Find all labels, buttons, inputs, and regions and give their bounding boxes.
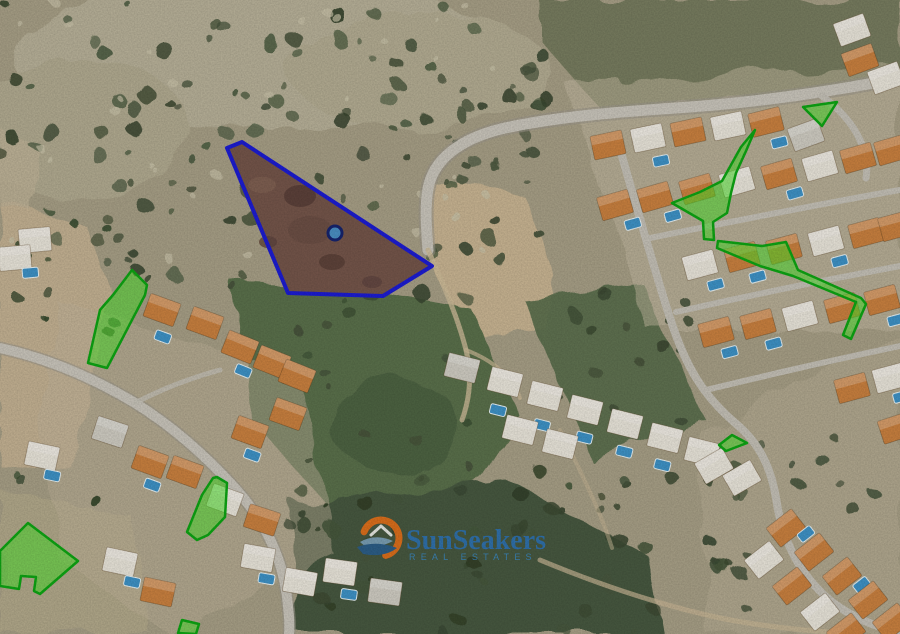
swimming-pool [258, 572, 275, 585]
map-viewport: SunSeakers REAL ESTATES [0, 0, 900, 634]
building [282, 567, 318, 596]
swimming-pool [22, 267, 39, 278]
building [367, 578, 402, 606]
plot-marker[interactable] [328, 226, 342, 240]
satellite-map[interactable]: SunSeakers REAL ESTATES [0, 0, 900, 634]
watermark-tagline-text: REAL ESTATES [409, 552, 537, 562]
highlight-plot-8[interactable] [178, 620, 199, 634]
swimming-pool [340, 588, 357, 600]
